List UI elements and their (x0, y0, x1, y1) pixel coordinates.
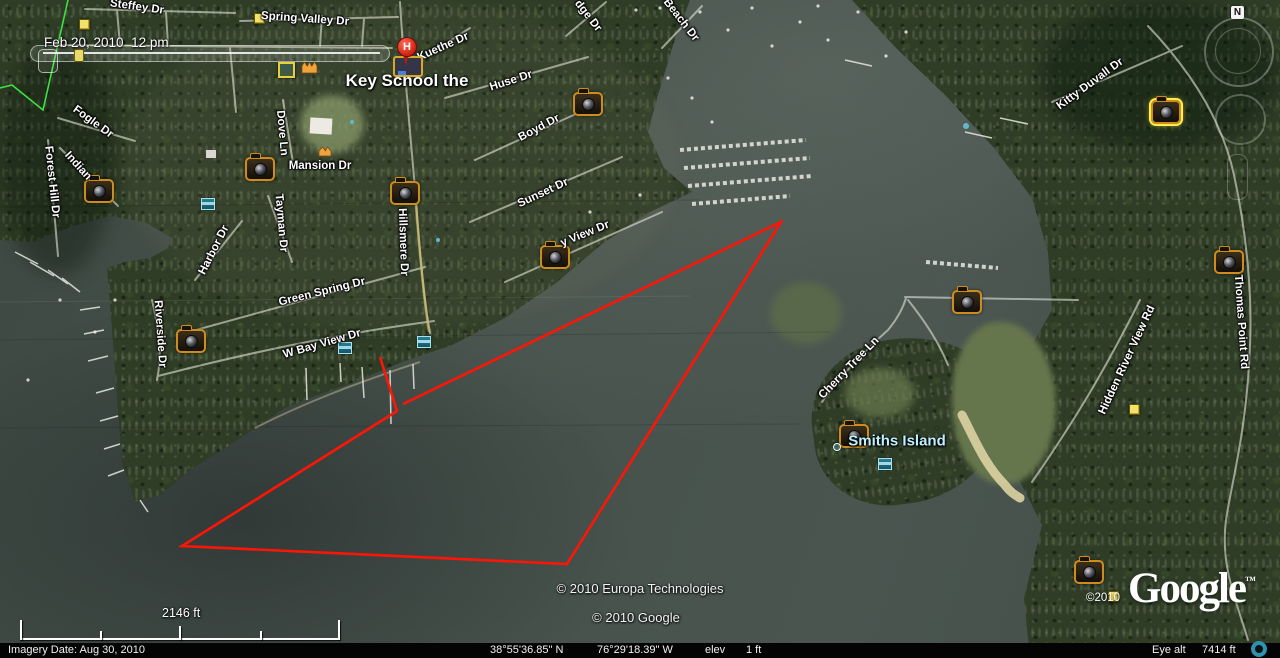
zoom-slider[interactable] (1227, 154, 1248, 200)
placemark-icons-layer (0, 0, 1280, 658)
google-logo-text: Google (1128, 565, 1245, 612)
streaming-progress-icon (1251, 641, 1267, 657)
photo-marker-icon[interactable] (201, 198, 215, 210)
google-logo: Google™ (1128, 564, 1256, 613)
scale-bar-tick (20, 620, 22, 640)
elevation-label: elev (705, 644, 725, 656)
status-bar: Imagery Date: Aug 30, 2010 38°55'36.85" … (0, 643, 1280, 658)
photo-marker-icon[interactable] (338, 342, 352, 354)
scale-bar-tick (100, 631, 102, 640)
placemark-icon[interactable] (254, 13, 265, 24)
island-dot-marker (833, 443, 841, 451)
placemark-icon[interactable] (79, 19, 90, 30)
time-slider-date-label: Feb 20, 2010 12 pm (44, 35, 169, 50)
placemark-icon[interactable] (1129, 404, 1140, 415)
photo-camera-icon[interactable] (176, 329, 206, 353)
compass-north-button[interactable]: N (1231, 6, 1244, 19)
time-slider-track[interactable] (43, 52, 380, 54)
photo-camera-icon[interactable] (1214, 250, 1244, 274)
photo-camera-icon[interactable] (1151, 100, 1181, 124)
eye-altitude-label: Eye alt (1152, 644, 1186, 656)
scale-bar-tick (179, 626, 181, 640)
photo-marker-icon[interactable] (417, 336, 431, 348)
building-placemark-icon[interactable] (318, 146, 333, 157)
photo-camera-icon[interactable] (540, 245, 570, 269)
copyright-google: © 2010 Google (592, 610, 680, 625)
photo-camera-icon[interactable] (390, 181, 420, 205)
photo-marker-icon[interactable] (878, 458, 892, 470)
photo-camera-icon[interactable] (1074, 560, 1104, 584)
latitude-readout: 38°55'36.85" N (490, 644, 563, 656)
time-slider-handle[interactable] (74, 49, 84, 62)
time-slider-options-button[interactable] (38, 49, 58, 73)
building-placemark-icon[interactable] (301, 61, 318, 74)
hospital-pin-icon[interactable]: H (397, 37, 417, 57)
look-joystick[interactable] (1215, 94, 1266, 145)
photo-camera-icon[interactable] (952, 290, 982, 314)
longitude-readout: 76°29'18.39" W (597, 644, 673, 656)
scale-bar-tick (338, 620, 340, 640)
photo-camera-icon[interactable] (84, 179, 114, 203)
imagery-date: Imagery Date: Aug 30, 2010 (8, 644, 145, 656)
google-earth-viewport[interactable]: Steffey DrSpring Valley DrFogle DrForest… (0, 0, 1280, 658)
scale-bar: 2146 ft (20, 606, 340, 640)
trademark-symbol: ™ (1245, 575, 1256, 587)
watermark-copyright: ©2010 (1086, 592, 1120, 604)
copyright-europa: © 2010 Europa Technologies (557, 581, 724, 596)
scale-bar-distance: 2146 ft (162, 606, 200, 620)
photo-camera-icon[interactable] (839, 424, 869, 448)
photo-camera-icon[interactable] (573, 92, 603, 116)
eye-altitude-value: 7414 ft (1202, 644, 1236, 656)
photo-frame-placemark-icon[interactable] (278, 62, 295, 78)
scale-bar-tick (260, 631, 262, 640)
elevation-value: 1 ft (746, 644, 761, 656)
photo-camera-icon[interactable] (245, 157, 275, 181)
compass-inner-ring[interactable] (1215, 28, 1261, 74)
